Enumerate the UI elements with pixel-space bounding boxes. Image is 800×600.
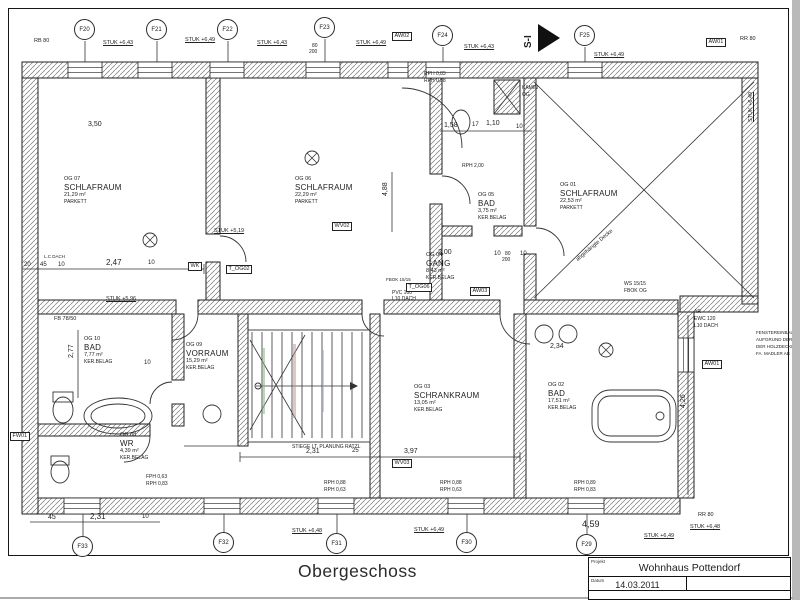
note-label: OG xyxy=(522,93,530,99)
room-name: SCHLAFRAUM xyxy=(64,183,122,193)
room-floor: PARKETT xyxy=(64,199,122,205)
dimension-label: 3,50 xyxy=(88,121,102,129)
window-marker-label: F29 xyxy=(581,542,591,548)
window-marker-label: F30 xyxy=(461,540,471,546)
note-label: L10 DACH xyxy=(392,297,416,303)
room-floor: KER.BELAG xyxy=(478,215,506,221)
window-marker: F21 xyxy=(146,19,167,40)
dimension-label: 3,97 xyxy=(404,448,418,456)
room-name: GANG xyxy=(426,259,454,269)
window-marker-label: F22 xyxy=(222,27,232,33)
dimension-label: 10 xyxy=(148,260,155,267)
level-label: STUK +6,49 xyxy=(185,37,215,43)
room-name: BAD xyxy=(84,343,112,353)
dimension-label: 200 xyxy=(502,258,510,264)
dimension-label: 4,26 xyxy=(680,394,688,408)
room-area: 4,39 m² xyxy=(120,448,148,455)
room-floor: PARKETT xyxy=(560,205,618,211)
room-label: OG 04GANG8,43 m²KER.BELAG xyxy=(426,252,454,281)
floor-plan-page: 3,501,58171,10102,0010104,882045102,4710… xyxy=(0,0,800,600)
component-tag: T_OG02 xyxy=(226,265,252,274)
parapet-height-label: RPH 0,88 xyxy=(440,481,462,487)
room-name: SCHLAFRAUM xyxy=(295,183,353,193)
room-area: 22,53 m² xyxy=(560,198,618,205)
room-area: 17,51 m² xyxy=(548,398,576,405)
note-label: STIEGE LT. PLANUNG RATZL xyxy=(292,445,360,451)
component-tag: AW01 xyxy=(702,360,722,369)
room-floor: KER.BELAG xyxy=(186,365,229,371)
window-marker-label: F21 xyxy=(151,27,161,33)
level-label: STUK +6,49 xyxy=(356,40,386,46)
room-floor: KER.BELAG xyxy=(426,275,454,281)
room-name: BAD xyxy=(478,199,506,209)
window-marker-label: F33 xyxy=(77,544,87,550)
component-tag: FW01 xyxy=(10,432,30,441)
note-label: S-I xyxy=(523,35,534,48)
title-block: Projekt Wohnhaus Pottendorf Datum 14.03.… xyxy=(588,557,791,600)
component-tag: AW02 xyxy=(392,32,412,41)
note-label: DER HOLZDECKE xyxy=(756,344,794,349)
component-tag: AW03 xyxy=(470,287,490,296)
room-name: SCHLAFRAUM xyxy=(560,189,618,199)
note-label: L.C DACH xyxy=(44,254,65,259)
level-label: STUK +6,49 xyxy=(644,533,674,539)
level-label: STUK +5,19 xyxy=(214,228,244,234)
dimension-label: 2,47 xyxy=(106,259,122,268)
room-id: OG 01 xyxy=(560,182,618,189)
room-id: OG 10 xyxy=(84,336,112,343)
note-label: FBOK OG xyxy=(624,289,647,295)
parapet-height-label: RPH 0,88 xyxy=(324,481,346,487)
window-marker-label: F24 xyxy=(437,33,447,39)
room-area: 7,77 m² xyxy=(84,352,112,359)
room-id: OG 08 xyxy=(120,432,148,439)
window-marker: F32 xyxy=(213,532,234,553)
room-floor: KER.BELAG xyxy=(548,405,576,411)
window-marker: F24 xyxy=(432,25,453,46)
room-floor: KER.BELAG xyxy=(84,359,112,365)
project-label: Projekt xyxy=(591,559,605,564)
room-area: 13,05 m² xyxy=(414,400,479,407)
room-floor: KER.BELAG xyxy=(120,455,148,461)
dimension-label: 2,31 xyxy=(90,513,106,522)
component-tag: T_OG06 xyxy=(406,283,432,292)
room-id: OG 03 xyxy=(414,384,479,391)
room-label: OG 06SCHLAFRAUM22,29 m²PARKETT xyxy=(295,176,353,205)
dimension-label: 200 xyxy=(309,50,317,56)
window-marker-label: F20 xyxy=(79,27,89,33)
note-label: FA. MADLER AB xyxy=(756,351,790,356)
level-label: STUK +5,96 xyxy=(106,296,136,302)
room-label: OG 08WR4,39 m²KER.BELAG xyxy=(120,432,148,461)
dimension-label: 2,77 xyxy=(68,344,76,358)
room-label: OG 03SCHRANKRAUM13,05 m²KER.BELAG xyxy=(414,384,479,413)
room-name: VORRAUM xyxy=(186,349,229,359)
room-id: OG 04 xyxy=(426,252,454,259)
level-label: STUK +6,48 xyxy=(690,524,720,530)
room-area: 8,43 m² xyxy=(426,268,454,275)
title-block-date-row: Datum 14.03.2011 xyxy=(589,577,790,591)
level-label: STUK +6,48 xyxy=(292,528,322,534)
dimension-label: 10 xyxy=(142,514,149,521)
level-label: STUK +6,49 xyxy=(594,52,624,58)
dimension-label: 10 xyxy=(58,262,65,269)
date-cell: Datum 14.03.2011 xyxy=(589,577,687,590)
room-id: OG 05 xyxy=(478,192,506,199)
dimension-label: 1,10 xyxy=(486,120,500,128)
component-tag: AW01 xyxy=(706,38,726,47)
window-marker-label: F23 xyxy=(319,25,329,31)
room-id: OG 07 xyxy=(64,176,122,183)
room-label: OG 07SCHLAFRAUM21,29 m²PARKETT xyxy=(64,176,122,205)
dimension-label: 17 xyxy=(472,122,479,129)
note-label: RB 80 xyxy=(34,38,49,44)
room-id: OG 09 xyxy=(186,342,229,349)
room-area: 22,29 m² xyxy=(295,192,353,199)
window-marker: F33 xyxy=(72,536,93,557)
parapet-height-label: RPH 0,83 xyxy=(146,482,168,488)
window-marker: F30 xyxy=(456,532,477,553)
title-block-project-row: Projekt Wohnhaus Pottendorf xyxy=(589,558,790,577)
note-label: EWC 120 xyxy=(694,317,715,323)
level-label: STUK +6,43 xyxy=(464,44,494,50)
window-marker-label: F31 xyxy=(331,541,341,547)
room-label: OG 10BAD7,77 m²KER.BELAG xyxy=(84,336,112,365)
parapet-height-label: FPH 0,63 xyxy=(146,475,167,481)
dimension-label: 45 xyxy=(48,514,56,522)
window-marker: F29 xyxy=(576,534,597,555)
parapet-height-label: RPH 2,00 xyxy=(462,164,484,170)
room-name: WR xyxy=(120,439,148,449)
room-label: OG 02BAD17,51 m²KER.BELAG xyxy=(548,382,576,411)
room-floor: KER.BELAG xyxy=(414,407,479,413)
parapet-height-label: RPH 0,63 xyxy=(440,488,462,494)
note-label: RR 80 xyxy=(698,512,714,518)
note-label: FENSTEREINBAU xyxy=(756,330,794,335)
window-marker: F20 xyxy=(74,19,95,40)
room-label: OG 09VORRAUM15,29 m²KER.BELAG xyxy=(186,342,229,371)
dimension-label: 2,34 xyxy=(550,343,564,351)
room-area: 15,29 m² xyxy=(186,358,229,365)
window-marker-label: F25 xyxy=(579,33,589,39)
component-tag: WV02 xyxy=(332,222,352,231)
title-block-empty-cell xyxy=(687,577,790,590)
window-marker: F31 xyxy=(326,533,347,554)
dimension-label: 4,59 xyxy=(582,519,600,529)
dimension-label: 45 xyxy=(40,262,47,269)
note-label: RR 80 xyxy=(740,36,756,42)
dimension-label: 4,88 xyxy=(382,182,390,196)
component-tag: WK xyxy=(188,262,202,271)
window-marker: F25 xyxy=(574,25,595,46)
note-label: AR xyxy=(694,310,701,316)
note-label: L10 DACH xyxy=(694,324,718,330)
note-label: WS 15/15 xyxy=(624,282,646,288)
note-label: FBOK 15/15 xyxy=(386,277,411,282)
dimension-label: 10 xyxy=(494,251,501,258)
scan-edge-right xyxy=(792,0,800,600)
note-label: AUFGRUND DER xyxy=(756,337,792,342)
component-tag: WV03 xyxy=(392,459,412,468)
level-label: STUK +6,49 xyxy=(748,92,754,122)
room-label: OG 01SCHLAFRAUM22,53 m²PARKETT xyxy=(560,182,618,211)
drawing-title: Obergeschoss xyxy=(298,561,417,582)
title-block-bottom-row xyxy=(589,591,790,599)
project-name: Wohnhaus Pottendorf xyxy=(589,558,790,574)
parapet-height-label: RPH 0,88 xyxy=(424,79,446,85)
parapet-height-label: RPH 0,83 xyxy=(424,72,446,78)
parapet-height-label: RPH 0,89 xyxy=(574,481,596,487)
labels-layer: 3,501,58171,10102,0010104,882045102,4710… xyxy=(0,0,800,600)
room-name: SCHRANKRAUM xyxy=(414,391,479,401)
room-name: BAD xyxy=(548,389,576,399)
window-marker: F22 xyxy=(217,19,238,40)
date-label: Datum xyxy=(591,578,604,583)
room-area: 3,75 m² xyxy=(478,208,506,215)
dimension-label: 1,58 xyxy=(444,122,458,130)
parapet-height-label: RPH 0,83 xyxy=(574,488,596,494)
note-label: abgehängte Decke xyxy=(575,228,614,262)
room-id: OG 02 xyxy=(548,382,576,389)
window-marker-label: F32 xyxy=(218,540,228,546)
dimension-label: 10 xyxy=(516,124,523,131)
dimension-label: 20 xyxy=(24,262,31,269)
dimension-label: 10 xyxy=(520,251,527,258)
room-id: OG 06 xyxy=(295,176,353,183)
room-area: 21,29 m² xyxy=(64,192,122,199)
room-floor: PARKETT xyxy=(295,199,353,205)
level-label: STUK +6,49 xyxy=(414,527,444,533)
note-label: KAMIN xyxy=(522,86,538,92)
window-marker: F23 xyxy=(314,17,335,38)
note-label: FB 78/50 xyxy=(54,316,76,322)
level-label: STUK +6,43 xyxy=(257,40,287,46)
room-label: OG 05BAD3,75 m²KER.BELAG xyxy=(478,192,506,221)
level-label: STUK +6,43 xyxy=(103,40,133,46)
dimension-label: 10 xyxy=(144,360,151,367)
parapet-height-label: RPH 0,63 xyxy=(324,488,346,494)
